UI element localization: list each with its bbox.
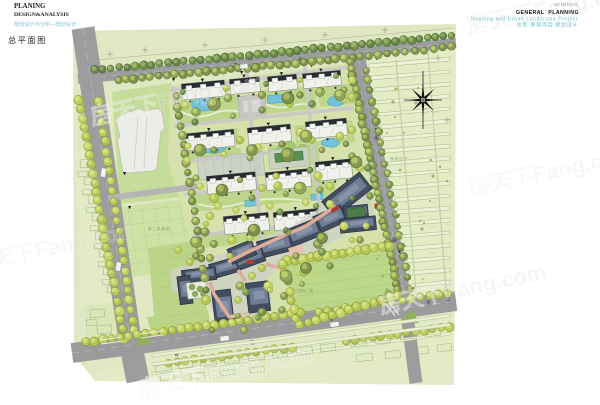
svg-text:总平面图: 总平面图 <box>8 35 47 45</box>
svg-text:罗兰香谷二期: 罗兰香谷二期 <box>292 288 313 293</box>
svg-text:NEIMENG: NEIMENG <box>553 2 578 7</box>
svg-text:PLANING: PLANING <box>14 3 46 10</box>
svg-text:住宅·景观项目·规划设计: 住宅·景观项目·规划设计 <box>517 21 578 29</box>
svg-text:DESIGN&ANALYSIS: DESIGN&ANALYSIS <box>14 12 69 18</box>
svg-text:GENERAL PLANNING: GENERAL PLANNING <box>516 10 579 16</box>
svg-text:荷 兰 风 情 园: 荷 兰 风 情 园 <box>148 226 170 231</box>
svg-text:规划设计与分析—规划设计: 规划设计与分析—规划设计 <box>14 20 76 28</box>
